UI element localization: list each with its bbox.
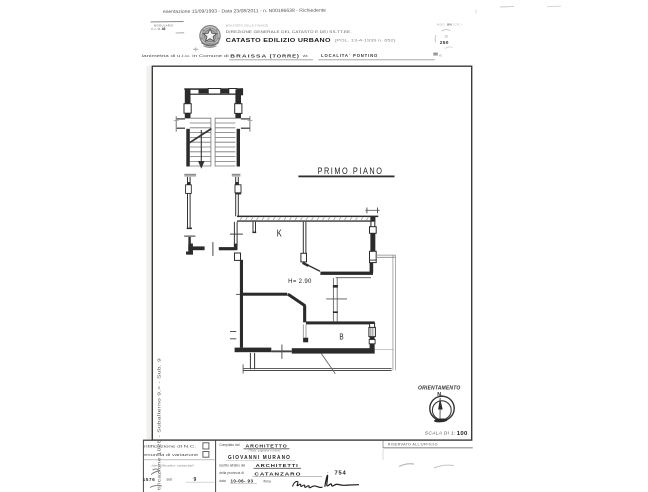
svg-text:K: K xyxy=(277,228,282,239)
svg-text:H= 2.90: H= 2.90 xyxy=(288,279,312,285)
svg-text:(Titolo, cognome e nome): (Titolo, cognome e nome) xyxy=(249,450,281,453)
svg-text:iscritto all'albo dei: iscritto all'albo dei xyxy=(219,464,245,468)
svg-text:1576: 1576 xyxy=(143,477,156,483)
svg-text:(POL. 13-4-1939 n. 652): (POL. 13-4-1939 n. 652) xyxy=(335,38,396,42)
svg-text:ARCHITETTO: ARCHITETTO xyxy=(246,443,288,448)
svg-text:BRAISSA: BRAISSA xyxy=(230,53,267,59)
svg-text:MOD. BN (CR.): MOD. BN (CR.) xyxy=(437,22,462,26)
svg-text:B: B xyxy=(339,332,343,342)
svg-text:della provincia di: della provincia di xyxy=(219,471,244,475)
svg-text:lanimetria di u.i.u. in Comune: lanimetria di u.i.u. in Comune di xyxy=(142,54,229,58)
svg-text:enuncia di variazione: enuncia di variazione xyxy=(144,453,198,457)
svg-text:RISERVATO ALL'UFFICIO: RISERVATO ALL'UFFICIO xyxy=(388,443,438,447)
svg-text:sub: sub xyxy=(167,478,173,482)
svg-text:n.: n. xyxy=(440,54,443,58)
svg-text:firma: firma xyxy=(264,480,271,484)
svg-text:F. c. M. 46: F. c. M. 46 xyxy=(152,27,166,31)
svg-text:250: 250 xyxy=(440,40,449,46)
svg-text:ARCHITETTI: ARCHITETTI xyxy=(256,463,299,468)
svg-text:MINISTERO DELLE FINANZE: MINISTERO DELLE FINANZE xyxy=(226,24,269,28)
svg-text:SCALA DI 1:: SCALA DI 1: xyxy=(425,430,456,436)
svg-text:CATANZARO: CATANZARO xyxy=(254,471,301,476)
svg-text:identificativi catastali: identificativi catastali xyxy=(152,464,194,468)
svg-text:(TORRE): (TORRE) xyxy=(270,53,300,58)
svg-text:754: 754 xyxy=(335,470,347,476)
svg-text:Compilato dal: Compilato dal xyxy=(219,443,239,447)
svg-text:10-06- 93: 10-06- 93 xyxy=(231,478,254,483)
svg-text:ntificazione di N.C.: ntificazione di N.C. xyxy=(144,445,196,449)
svg-text:DIREZIONE GENERALE DEL CATASTO: DIREZIONE GENERALE DEL CATASTO E DEI SS.… xyxy=(226,30,352,34)
svg-text:1E: 1E xyxy=(444,34,448,38)
svg-text:100: 100 xyxy=(457,431,468,437)
svg-text:PRIMO PIANO: PRIMO PIANO xyxy=(318,165,384,176)
svg-text:LOCALITA´ PONTINO: LOCALITA´ PONTINO xyxy=(321,53,378,59)
svg-text:data: data xyxy=(219,479,226,483)
svg-text:CATASTO EDILIZIO URBANO: CATASTO EDILIZIO URBANO xyxy=(226,38,331,44)
svg-text:ORIENTAMENTO: ORIENTAMENTO xyxy=(418,386,461,392)
